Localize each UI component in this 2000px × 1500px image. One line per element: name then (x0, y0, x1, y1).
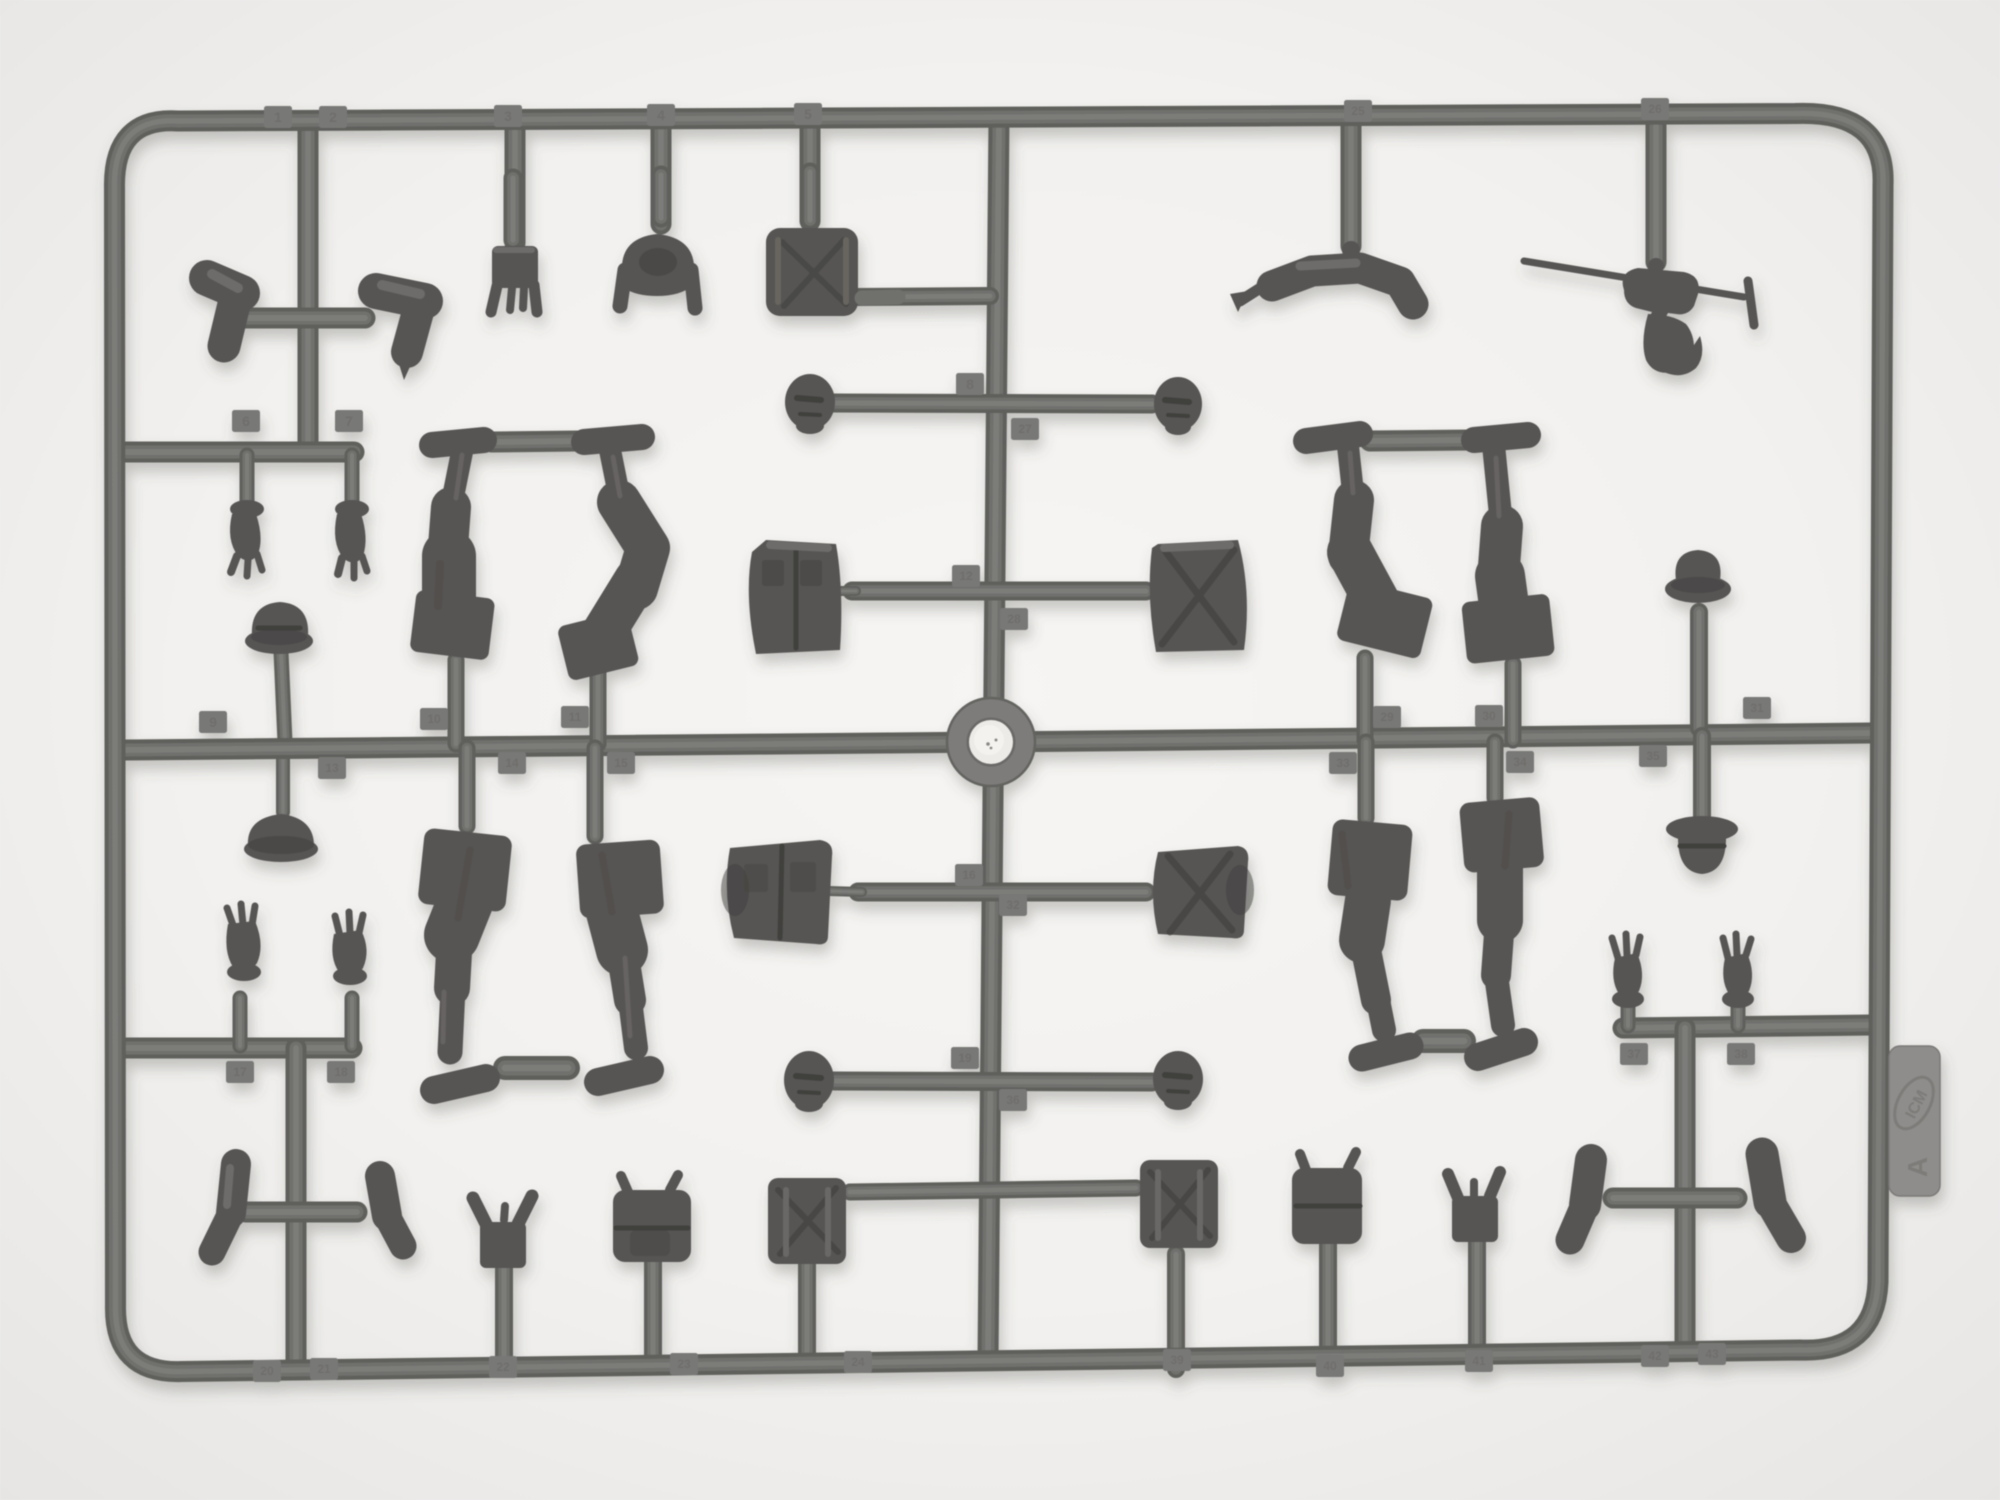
svg-text:23: 23 (677, 1357, 691, 1371)
svg-text:5: 5 (804, 106, 812, 122)
svg-text:30: 30 (1482, 709, 1496, 723)
svg-text:6: 6 (242, 413, 250, 429)
svg-text:43: 43 (1705, 1347, 1719, 1361)
svg-text:2: 2 (329, 109, 337, 125)
svg-text:22: 22 (496, 1360, 510, 1374)
svg-text:26: 26 (1648, 102, 1662, 116)
svg-text:13: 13 (325, 761, 339, 775)
svg-text:34: 34 (1513, 755, 1527, 769)
svg-text:36: 36 (1006, 1093, 1020, 1107)
svg-text:19: 19 (958, 1051, 972, 1065)
svg-text:9: 9 (209, 714, 217, 730)
svg-text:8: 8 (966, 376, 974, 392)
svg-text:42: 42 (1648, 1349, 1662, 1363)
svg-text:33: 33 (1336, 756, 1350, 770)
svg-text:32: 32 (1006, 898, 1020, 912)
svg-text:14: 14 (505, 756, 519, 770)
svg-text:A: A (1902, 1157, 1933, 1177)
svg-text:7: 7 (345, 413, 353, 429)
svg-text:12: 12 (959, 569, 973, 583)
svg-text:40: 40 (1323, 1359, 1337, 1373)
svg-text:27: 27 (1018, 422, 1032, 436)
svg-text:25: 25 (1351, 104, 1365, 118)
svg-text:11: 11 (569, 710, 582, 724)
svg-text:15: 15 (614, 756, 628, 770)
svg-text:24: 24 (851, 1355, 865, 1369)
svg-text:28: 28 (1007, 612, 1021, 626)
svg-text:21: 21 (317, 1362, 331, 1376)
svg-text:29: 29 (1380, 710, 1394, 724)
svg-text:37: 37 (1627, 1047, 1641, 1061)
svg-text:31: 31 (1750, 701, 1764, 715)
svg-text:38: 38 (1734, 1047, 1748, 1061)
svg-text:39: 39 (1170, 1353, 1184, 1367)
svg-text:1: 1 (274, 109, 282, 125)
svg-text:3: 3 (504, 108, 512, 124)
svg-text:4: 4 (657, 107, 665, 123)
svg-text:41: 41 (1472, 1354, 1486, 1368)
svg-text:16: 16 (962, 868, 976, 882)
svg-text:17: 17 (233, 1065, 247, 1079)
svg-text:20: 20 (260, 1364, 274, 1378)
svg-text:35: 35 (1646, 749, 1660, 763)
svg-text:18: 18 (334, 1065, 348, 1079)
svg-text:10: 10 (427, 712, 441, 726)
